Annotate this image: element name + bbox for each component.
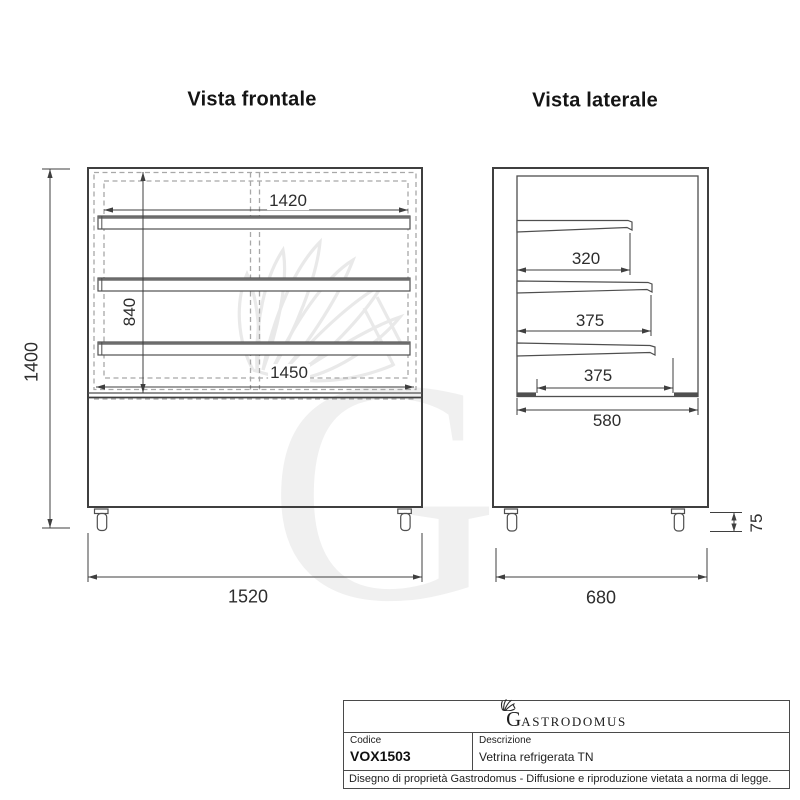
dim-side-inner-depth: 580 — [591, 412, 623, 430]
brand-name: ASTRODOMUS — [521, 714, 627, 729]
technical-drawing-sheet: G — [0, 0, 800, 800]
dim-front-total-width: 1520 — [226, 588, 270, 607]
dim-side-shelf1-depth: 320 — [570, 250, 602, 268]
description-label: Descrizione — [479, 735, 594, 746]
dim-front-inner-width: 1450 — [268, 364, 310, 382]
chef-hat-icon — [500, 697, 517, 711]
legal-note: Disegno di proprietà Gastrodomus - Diffu… — [349, 773, 771, 785]
drawing-linework: G — [0, 0, 800, 800]
title-block: GASTRODOMUS Codice VOX1503 Descrizione V… — [343, 700, 790, 789]
brand-logo: GASTRODOMUS — [506, 709, 627, 730]
side-casters — [505, 509, 685, 531]
side-shelf-3 — [517, 343, 655, 356]
title-block-brand-row: GASTRODOMUS — [344, 701, 789, 733]
dim-front-top-width: 1420 — [267, 192, 309, 210]
description-value: Vetrina refrigerata TN — [479, 750, 594, 764]
legal-note-row: Disegno di proprietà Gastrodomus - Diffu… — [344, 771, 789, 787]
dim-side-shelf2-depth: 375 — [574, 312, 606, 330]
dim-side-shelf3-depth: 375 — [582, 367, 614, 385]
side-shelf-2 — [517, 281, 652, 293]
description-cell: Descrizione Vetrina refrigerata TN — [473, 733, 600, 770]
code-value: VOX1503 — [350, 748, 466, 764]
side-shelf-1 — [517, 221, 632, 233]
dim-side-total-depth: 680 — [584, 589, 618, 608]
side-view-title: Vista laterale — [532, 90, 658, 113]
dim-front-total-height: 1400 — [23, 340, 42, 384]
side-shelves — [517, 221, 655, 357]
dim-front-shelf-height: 840 — [121, 296, 139, 328]
side-cabinet-outline — [493, 168, 708, 507]
code-cell: Codice VOX1503 — [344, 733, 473, 770]
side-view-drawing — [493, 168, 708, 531]
title-block-fields-row: Codice VOX1503 Descrizione Vetrina refri… — [344, 733, 789, 771]
code-label: Codice — [350, 735, 466, 746]
dim-side-caster-height: 75 — [748, 512, 766, 535]
front-view-title: Vista frontale — [187, 89, 316, 112]
